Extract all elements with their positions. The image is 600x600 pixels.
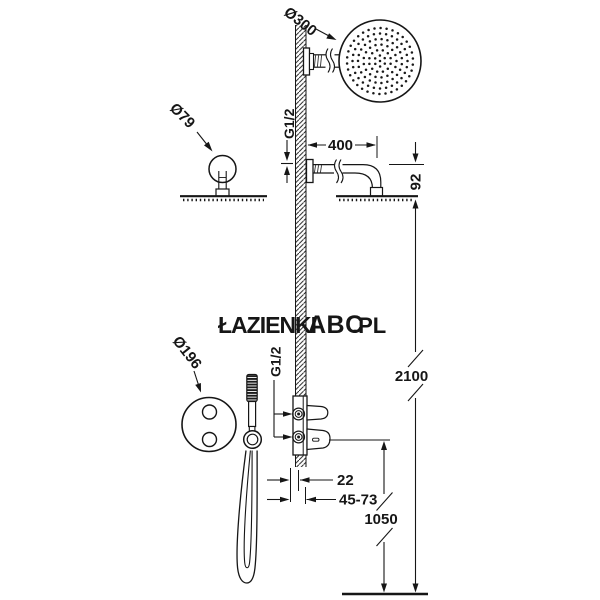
handshower-handle xyxy=(249,402,256,427)
head-height-text: 2100 xyxy=(395,368,428,385)
technical-drawing-page: ŁAZIENKI ABC .PL Ø300 xyxy=(0,0,600,600)
valve-height-text: 1050 xyxy=(364,511,397,528)
arm-flange xyxy=(307,160,314,183)
trim-diameter-text: Ø196 xyxy=(169,333,205,372)
hand-shower xyxy=(237,375,261,584)
leader-arrowhead xyxy=(195,383,201,393)
label-head-diameter: Ø300 xyxy=(281,4,337,40)
shower-arm-side-view xyxy=(307,160,419,201)
recess-offset-text: 22 xyxy=(337,472,354,489)
label-trim-diameter: Ø196 xyxy=(169,333,205,393)
joint-diameter-text: Ø79 xyxy=(166,100,198,132)
dim-head-height: 2100 xyxy=(395,208,428,593)
arm-length-text: 400 xyxy=(328,137,353,154)
label-joint-diameter: Ø79 xyxy=(166,100,212,152)
handshower-head xyxy=(247,375,257,402)
valve-trim-front-view xyxy=(182,398,236,452)
dim-recess-range: 45-73 xyxy=(267,487,377,509)
break-mark xyxy=(377,493,393,511)
swivel-joint xyxy=(209,156,236,183)
head-joint-side-view xyxy=(180,156,267,201)
shower-system-installation-diagram: ŁAZIENKI ABC .PL Ø300 xyxy=(0,0,600,600)
pipe-break-symbol xyxy=(335,160,339,184)
valve-body-side-view xyxy=(293,396,330,455)
holder-ring xyxy=(244,431,262,449)
thread-bottom-text: G1/2 xyxy=(268,346,284,377)
dim-head-drop: 92 xyxy=(389,142,425,209)
dim-arm-length: 400 xyxy=(308,136,378,158)
thread-top-text: G1/2 xyxy=(281,108,297,139)
break-mark xyxy=(408,350,423,367)
thread-label-top: G1/2 xyxy=(281,108,297,183)
shower-hose xyxy=(237,451,257,584)
pipe-break-symbol xyxy=(326,49,330,73)
leader-arrowhead xyxy=(326,33,336,40)
dim-valve-height: 1050 xyxy=(329,440,398,593)
arm-wall-flange xyxy=(304,48,310,75)
thread-label-bottom: G1/2 xyxy=(268,346,293,439)
head-drop-text: 92 xyxy=(408,174,425,191)
valve-body xyxy=(293,396,307,455)
recess-range-text: 45-73 xyxy=(339,492,377,509)
watermark-suffix: .PL xyxy=(352,313,386,338)
upper-handle xyxy=(307,406,328,421)
